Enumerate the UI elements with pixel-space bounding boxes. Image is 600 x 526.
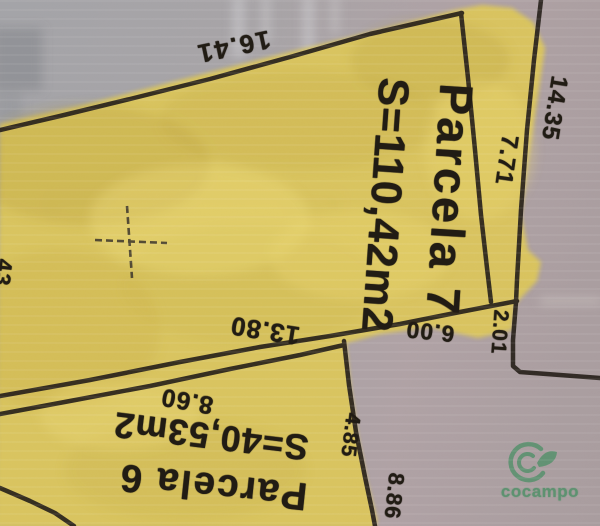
cocampo-logo-icon (511, 444, 557, 480)
cocampo-logo-wordmark: cocampo (492, 482, 588, 502)
dimension-right-step: 2.01 (486, 302, 512, 361)
dimension-parcel6-lower-right: 8.86 (379, 461, 410, 526)
scanned-survey-plan: Parcela 7 S=110,42m2 S=40,53m2 Parcela 6… (0, 0, 600, 526)
